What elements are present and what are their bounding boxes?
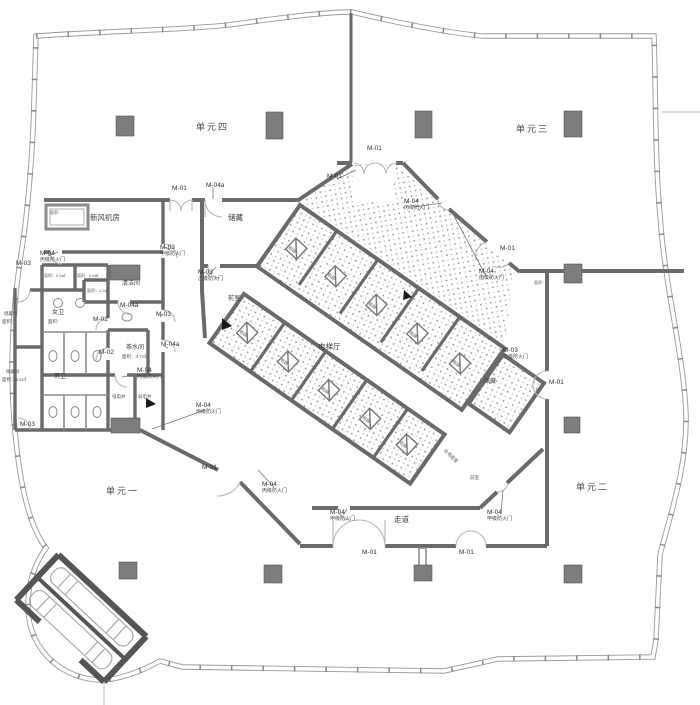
room-label-vestibule-s: 前室 bbox=[470, 475, 479, 480]
room-label-storage-w2: 储藏间 bbox=[6, 369, 20, 374]
room-label-elevator-hall: 电梯厅 bbox=[318, 343, 341, 352]
room-label-storage-nw: 储藏 bbox=[228, 214, 243, 223]
door-label-m04-jia: M-04甲级防火门 bbox=[330, 510, 355, 522]
door-label-m01: M-01 bbox=[362, 550, 377, 557]
door-label-m01: M-01 bbox=[500, 246, 515, 253]
area-label-tea: 面积：4.7㎡ bbox=[122, 354, 146, 359]
fresh-air-plenum-box bbox=[46, 205, 88, 229]
core-hatched-areas bbox=[204, 164, 548, 513]
area-label-shaft3: 面积：1.2㎡ bbox=[87, 289, 109, 294]
room-label-storage-e: 储藏 bbox=[484, 379, 496, 386]
door-label-m04-bing: M-04丙级防火门 bbox=[137, 368, 162, 380]
door-label-m03: M-03 bbox=[16, 261, 31, 268]
door-label-m01: M-01 bbox=[459, 550, 474, 557]
door-label-m04-bing: M-04丙级防火门 bbox=[40, 251, 65, 263]
room-label-storage-w1: 储藏间 bbox=[4, 311, 18, 316]
door-label-m02: M-02 bbox=[93, 317, 108, 324]
area-label-shaft1: 面积：0.5㎡ bbox=[44, 274, 66, 279]
door-label-m04-bing: M-04丙级防火门 bbox=[262, 482, 287, 494]
door-label-m04a: M-04a bbox=[206, 183, 224, 190]
door-label-m03-yi: M-03乙级防火门 bbox=[503, 348, 528, 360]
door-label-m02: M-02 bbox=[99, 350, 114, 357]
floor-plan: 单元四 单元三 单元一 单元二 新风机房 储藏 清洁间 女卫 面积： 男卫 茶水… bbox=[0, 0, 700, 705]
room-label-female-wc: 女卫 bbox=[52, 310, 64, 317]
unit-label-3: 单元三 bbox=[516, 124, 549, 134]
door-label-m03-jia: M-03甲级防火门 bbox=[160, 245, 185, 257]
door-label-m04-bing: M-04丙级防火门 bbox=[196, 403, 221, 415]
unit-label-2: 单元二 bbox=[576, 482, 609, 492]
door-label-m01: M-01 bbox=[202, 465, 217, 472]
room-label-tea: 茶水间 bbox=[126, 345, 144, 352]
room-label-weak-elec: 弱电井 bbox=[138, 394, 152, 399]
area-label-storage-w1: 面积： bbox=[2, 319, 16, 324]
room-label-fresh-air: 新风机房 bbox=[90, 214, 120, 223]
room-label-strong-elec: 强电井 bbox=[112, 394, 126, 399]
door-label-m03: M-03 bbox=[20, 422, 35, 429]
door-label-m01: M-01 bbox=[327, 174, 342, 181]
area-label-plenum: 面积： bbox=[50, 211, 62, 216]
door-label-m01: M-01 bbox=[367, 146, 382, 153]
door-label-m01: M-01 bbox=[549, 380, 564, 387]
unit-label-4: 单元四 bbox=[196, 122, 229, 132]
door-label-m04-bing: M-04丙级防火门 bbox=[404, 199, 429, 211]
door-label-m04a: M-04a bbox=[161, 342, 179, 349]
door-label-m03-yi: M-03乙级防火门 bbox=[198, 270, 223, 282]
room-label-male-wc: 男卫 bbox=[54, 374, 66, 381]
door-label-m04a: M-04a bbox=[120, 303, 138, 310]
area-label-storage-w2: 面积：3.4㎡ bbox=[2, 377, 26, 382]
area-label-triangle: 面积： bbox=[534, 281, 546, 286]
door-label-m03: M-03 bbox=[156, 312, 171, 319]
area-label-shaft2: 面积：0.6㎡ bbox=[77, 274, 99, 279]
room-label-corridor: 走道 bbox=[394, 516, 409, 525]
area-label-female-wc: 面积： bbox=[48, 319, 62, 324]
room-label-vestibule-nw: 前室 bbox=[228, 296, 240, 303]
door-label-m04-bing: M-04丙级防火门 bbox=[479, 269, 504, 281]
room-label-cleaning: 清洁间 bbox=[122, 281, 140, 288]
door-label-m04-jia: M-04甲级防火门 bbox=[487, 510, 512, 522]
unit-label-1: 单元一 bbox=[106, 486, 139, 496]
door-label-m01: M-01 bbox=[172, 186, 187, 193]
